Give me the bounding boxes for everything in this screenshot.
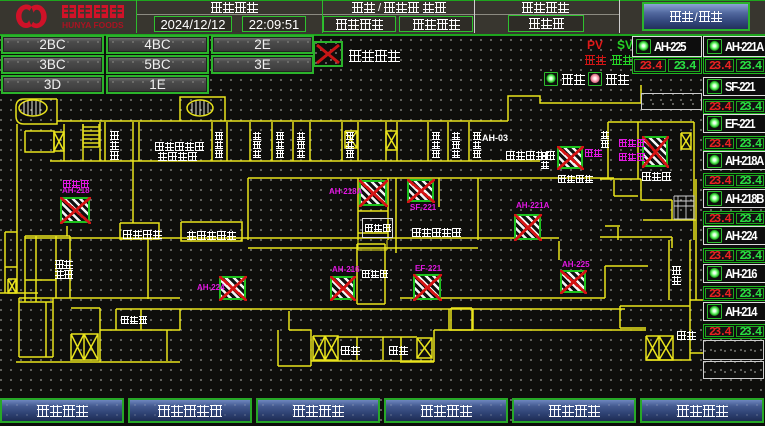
svg-text:HUNYA FOODS: HUNYA FOODS: [62, 20, 124, 30]
